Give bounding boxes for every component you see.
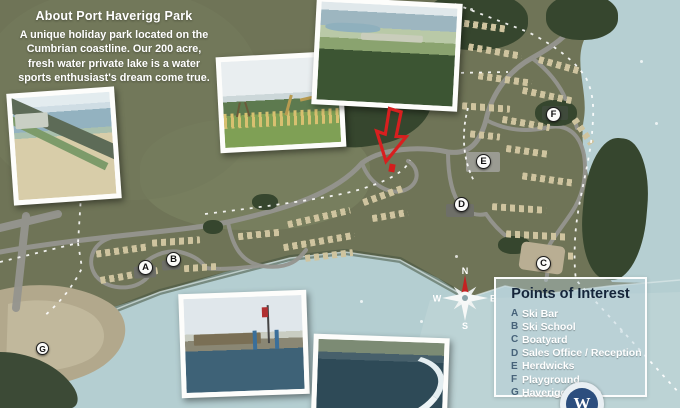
- park-map-canvas: A B C D E F G N E S W Points of Interest…: [0, 0, 680, 408]
- marker-letter: B: [170, 254, 177, 265]
- map-marker-d: D: [454, 197, 469, 212]
- map-marker-a: A: [138, 260, 153, 275]
- map-marker-g: G: [36, 342, 49, 355]
- points-of-interest-panel: Points of Interest ASki Bar BSki School …: [494, 277, 647, 397]
- legend-letter: C: [496, 334, 522, 345]
- legend-label: Boatyard: [522, 334, 568, 346]
- photo-park-aerial: [311, 0, 462, 112]
- water-speckle: [455, 255, 458, 258]
- compass-s-label: S: [462, 321, 468, 330]
- compass-n-label: N: [462, 266, 469, 276]
- legend-label: Sales Office / Reception: [522, 347, 642, 359]
- legend-letter: E: [496, 361, 522, 372]
- water-speckle: [470, 8, 473, 11]
- legend-letter: F: [496, 374, 522, 385]
- marker-letter: G: [39, 344, 46, 354]
- compass-w-label: W: [433, 294, 442, 304]
- map-marker-e: E: [476, 154, 491, 169]
- about-block: About Port Haverigg Park A unique holida…: [12, 9, 216, 85]
- legend-row: CBoatyard: [496, 333, 645, 346]
- water-speckle: [420, 320, 423, 323]
- marker-letter: F: [551, 109, 557, 120]
- map-marker-b: B: [166, 252, 181, 267]
- brand-badge-letter: W: [574, 394, 591, 408]
- legend-label: Ski School: [522, 321, 576, 333]
- about-text-line: sports enthusiast's dream come true.: [12, 71, 216, 85]
- map-marker-c: C: [536, 256, 551, 271]
- legend-letter: G: [496, 387, 522, 398]
- marker-letter: D: [458, 199, 465, 210]
- marker-letter: E: [480, 156, 486, 167]
- about-text-line: A unique holiday park located on the: [12, 28, 216, 42]
- legend-label: Herdwicks: [522, 360, 575, 372]
- legend-title: Points of Interest: [496, 286, 645, 302]
- marker-letter: A: [142, 262, 149, 273]
- map-marker-f: F: [546, 107, 561, 122]
- legend-row: BSki School: [496, 320, 645, 333]
- legend-row: EHerdwicks: [496, 360, 645, 373]
- legend-letter: D: [496, 348, 522, 359]
- compass-rose-icon: N E S W: [433, 266, 497, 330]
- legend-letter: A: [496, 308, 522, 319]
- location-arrow-icon: [368, 104, 415, 170]
- about-text-line: Cumbrian coastline. Our 200 acre,: [12, 42, 216, 56]
- water-speckle: [655, 122, 658, 125]
- water-speckle: [640, 60, 643, 63]
- legend-row: ASki Bar: [496, 307, 645, 320]
- photo-beach-aerial: [6, 86, 122, 205]
- water-speckle: [360, 300, 363, 303]
- about-title: About Port Haverigg Park: [12, 9, 216, 23]
- photo-speedboat: [310, 334, 449, 408]
- marker-letter: C: [540, 258, 547, 269]
- about-text-line: fresh water private lake is a water: [12, 57, 216, 71]
- legend-letter: B: [496, 321, 522, 332]
- legend-label: Ski Bar: [522, 308, 558, 320]
- legend-row: DSales Office / Reception: [496, 347, 645, 360]
- photo-marina: [178, 290, 310, 398]
